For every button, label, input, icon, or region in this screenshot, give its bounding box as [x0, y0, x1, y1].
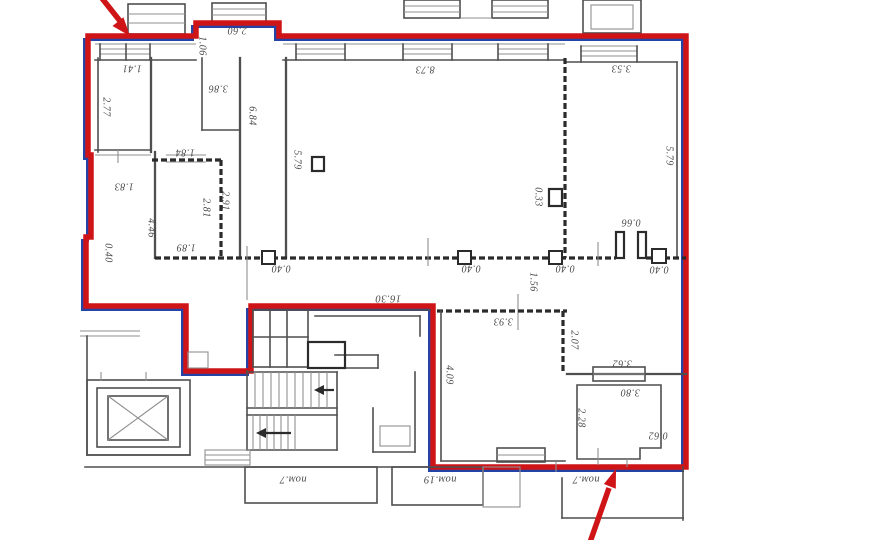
- dim-label: 2.07: [569, 330, 580, 350]
- dim-label: 2.60: [227, 25, 247, 36]
- dim-label: 2.28: [576, 408, 587, 428]
- elevator-cab-icon: [108, 396, 168, 440]
- dim-label: 0.62: [648, 430, 668, 441]
- dim-label: 3.53: [611, 63, 632, 74]
- elevator: [87, 336, 190, 455]
- dim-label: 1.84: [175, 147, 195, 158]
- dim-label: 3.93: [493, 316, 514, 327]
- dim-label: 0.33: [533, 187, 544, 207]
- stair-direction-arrow-icon: [314, 385, 334, 395]
- dim-label: 8.73: [415, 64, 435, 75]
- room-label: пом.19: [423, 474, 456, 485]
- room-label: пом.7: [572, 474, 599, 485]
- room-label: пом.7: [279, 474, 306, 485]
- exterior-windows: [128, 0, 641, 34]
- dim-label: 1.89: [176, 242, 196, 253]
- dim-label: 3.62: [612, 358, 633, 369]
- dim-label: 1.56: [528, 272, 539, 292]
- dim-label: 2.91: [220, 191, 231, 211]
- unit-outline-red: [86, 23, 686, 467]
- dim-label: 2.81: [201, 198, 212, 218]
- dim-label: 0.40: [461, 263, 481, 274]
- dim-label: 1.06: [197, 36, 208, 56]
- dim-label: 0.40: [555, 263, 575, 274]
- room-393: [437, 311, 567, 462]
- dim-label: 16.30: [375, 293, 401, 304]
- floor-plan: 1.41 2.77 1.06 2.60 3.86 6.84 8.73 3.53 …: [0, 0, 870, 540]
- staircase: [205, 371, 337, 465]
- dim-label: 6.84: [247, 106, 258, 126]
- red-arrow-top-left: [97, 0, 130, 36]
- dim-label: 0.66: [621, 217, 641, 228]
- dim-label: 1.41: [122, 63, 142, 74]
- dim-label: 0.40: [271, 263, 291, 274]
- dim-label: 3.80: [620, 387, 641, 398]
- dim-labels: 1.41 2.77 1.06 2.60 3.86 6.84 8.73 3.53 …: [101, 25, 675, 441]
- dim-label: 4.09: [444, 365, 455, 385]
- dim-label: 0.40: [649, 264, 669, 275]
- dim-label: 4.46: [146, 218, 157, 238]
- top-wall-windows: [95, 44, 677, 62]
- dim-label: 3.86: [208, 83, 229, 94]
- bottom-rooms: [245, 467, 683, 520]
- wc-cubicles: [253, 310, 345, 368]
- unit-outline-blue: [83, 27, 683, 471]
- dim-label: 1.83: [114, 181, 134, 192]
- dim-label: 2.77: [101, 97, 112, 117]
- room-228: [556, 367, 686, 472]
- floor-plan-canvas: 1.41 2.77 1.06 2.60 3.86 6.84 8.73 3.53 …: [0, 0, 870, 540]
- room-labels: пом.7 пом.19 пом.7: [279, 474, 599, 485]
- dim-label: 5.79: [664, 146, 675, 166]
- dim-label: 5.79: [292, 150, 303, 170]
- dim-label: 0.40: [103, 243, 114, 263]
